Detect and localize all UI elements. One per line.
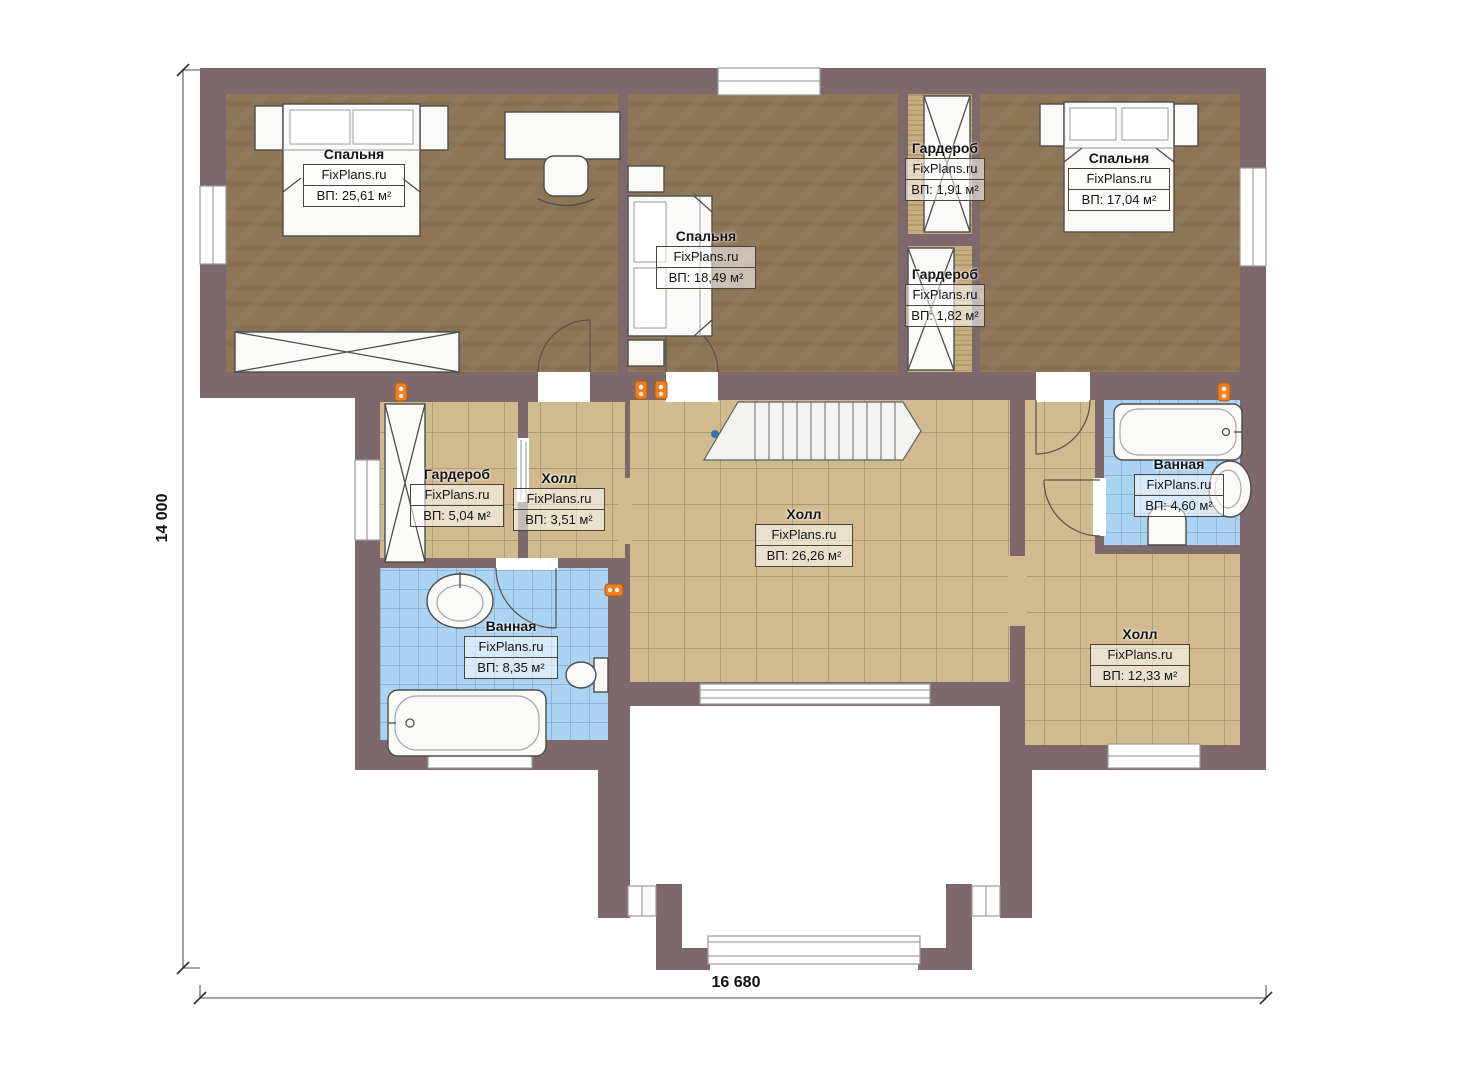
nightstand-icon: [628, 340, 664, 366]
window: [1240, 168, 1266, 266]
room-label-wardrobe-3: Гардероб FixPlans.ruВП: 5,04 м²: [410, 466, 504, 527]
room-brand: FixPlans.ru: [1135, 475, 1223, 496]
room-brand: FixPlans.ru: [1091, 645, 1189, 666]
room-area: ВП: 4,60 м²: [1135, 496, 1223, 516]
room-area: ВП: 26,26 м²: [756, 546, 852, 566]
room-brand: FixPlans.ru: [756, 525, 852, 546]
room-name: Холл: [1090, 626, 1190, 643]
room-area: ВП: 1,91 м²: [906, 180, 984, 200]
desk-icon: [505, 112, 620, 159]
room-area: ВП: 18,49 м²: [657, 268, 755, 288]
room-name: Холл: [755, 506, 853, 523]
window: [718, 68, 820, 95]
dimension-height-label: 14 000: [154, 475, 172, 561]
room-label-hall-right: Холл FixPlans.ruВП: 12,33 м²: [1090, 626, 1190, 687]
room-brand: FixPlans.ru: [514, 489, 604, 510]
balcony-glazing: [700, 684, 930, 704]
room-area: ВП: 25,61 м²: [304, 186, 404, 206]
room-area: ВП: 12,33 м²: [1091, 666, 1189, 686]
bathtub-icon: [388, 690, 546, 756]
room-name: Гардероб: [410, 466, 504, 483]
entrance-glazing: [708, 936, 920, 964]
floor-plan: Спальня FixPlans.ruВП: 25,61 м² Спальня …: [0, 0, 1474, 1080]
room-label-wardrobe-1: Гардероб FixPlans.ruВП: 1,91 м²: [905, 140, 985, 201]
room-area: ВП: 3,51 м²: [514, 510, 604, 530]
window: [355, 460, 380, 540]
window: [628, 886, 656, 916]
room-name: Ванная: [1134, 456, 1224, 473]
room-brand: FixPlans.ru: [465, 637, 557, 658]
room-label-wardrobe-2: Гардероб FixPlans.ruВП: 1,82 м²: [905, 266, 985, 327]
room-name: Гардероб: [905, 140, 985, 157]
room-brand: FixPlans.ru: [906, 285, 984, 306]
window: [200, 186, 226, 264]
room-brand: FixPlans.ru: [304, 165, 404, 186]
room-brand: FixPlans.ru: [1069, 169, 1169, 190]
room-brand: FixPlans.ru: [906, 159, 984, 180]
room-label-bedroom-2: Спальня FixPlans.ruВП: 18,49 м²: [656, 228, 756, 289]
bathtub-icon: [1114, 404, 1242, 460]
room-label-bathroom-right: Ванная FixPlans.ruВП: 4,60 м²: [1134, 456, 1224, 517]
window: [1108, 744, 1200, 768]
wall-lamp-icon: [1218, 383, 1230, 401]
room-label-hall-small: Холл FixPlans.ruВП: 3,51 м²: [513, 470, 605, 531]
room-name: Гардероб: [905, 266, 985, 283]
dimension-vertical: [177, 64, 200, 974]
room-brand: FixPlans.ru: [411, 485, 503, 506]
nightstand-icon: [628, 166, 664, 192]
wall-lamp-icon: [395, 383, 407, 401]
nightstand-icon: [255, 106, 283, 150]
room-label-bathroom-left: Ванная FixPlans.ruВП: 8,35 м²: [464, 618, 558, 679]
wardrobe-icon: [235, 332, 459, 372]
floor-plan-drawing: [0, 0, 1474, 1080]
wall-lamp-icon: [635, 381, 647, 399]
nightstand-icon: [1040, 104, 1064, 146]
nightstand-icon: [1174, 104, 1198, 146]
room-label-hall-main: Холл FixPlans.ruВП: 26,26 м²: [755, 506, 853, 567]
room-name: Ванная: [464, 618, 558, 635]
stairs-icon: [704, 402, 921, 460]
room-label-bedroom-3: Спальня FixPlans.ruВП: 17,04 м²: [1068, 150, 1170, 211]
room-area: ВП: 17,04 м²: [1069, 190, 1169, 210]
dimension-width-label: 16 680: [693, 974, 779, 992]
wall-lamp-icon: [655, 381, 667, 399]
room-area: ВП: 1,82 м²: [906, 306, 984, 326]
room-name: Спальня: [1068, 150, 1170, 167]
room-name: Спальня: [303, 146, 405, 163]
room-area: ВП: 8,35 м²: [465, 658, 557, 678]
room-label-bedroom-1: Спальня FixPlans.ruВП: 25,61 м²: [303, 146, 405, 207]
room-name: Холл: [513, 470, 605, 487]
wall-lamp-icon: [605, 584, 623, 596]
nightstand-icon: [420, 106, 448, 150]
room-brand: FixPlans.ru: [657, 247, 755, 268]
window: [972, 886, 1000, 916]
room-area: ВП: 5,04 м²: [411, 506, 503, 526]
room-name: Спальня: [656, 228, 756, 245]
